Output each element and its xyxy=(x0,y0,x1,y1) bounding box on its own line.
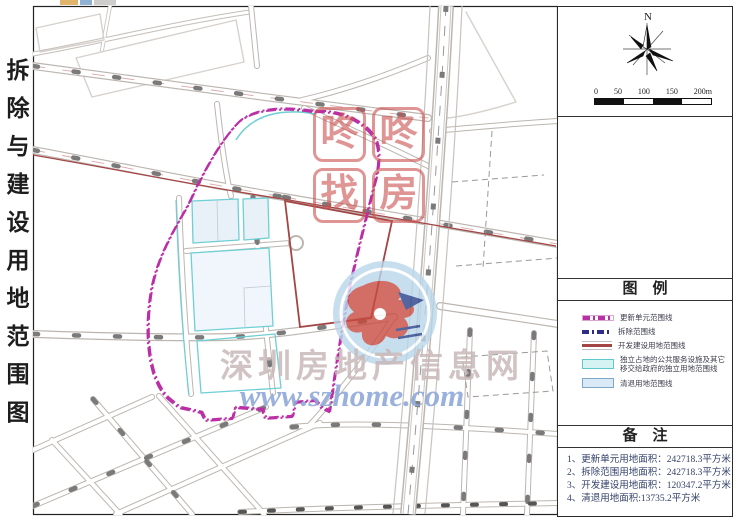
note-item: 4、清退用地面积:13735.2平方米 xyxy=(567,493,729,506)
north-label: N xyxy=(644,11,652,23)
notes-header: 备 注 xyxy=(558,425,732,448)
scale-tick: 150 xyxy=(666,87,678,96)
scale-tick: 100 xyxy=(638,87,650,96)
legend-item-public-facility: 独立占地的公共服务设施及其它 移交给政府的独立用地范围线 xyxy=(582,355,728,373)
stamp-char: 找 xyxy=(313,168,366,223)
edge-sliver xyxy=(60,0,116,5)
legend-label: 清退用地范围线 xyxy=(620,379,673,388)
planning-map-sheet: 拆除与建设用地范围图 xyxy=(0,0,740,522)
scale-bar-segments xyxy=(594,98,712,105)
legend-label: 独立占地的公共服务设施及其它 移交给政府的独立用地范围线 xyxy=(620,355,725,373)
north-arrow: N xyxy=(618,9,676,83)
legend-item-development: 开发建设用地范围线 xyxy=(582,341,728,350)
note-item: 1、更新单元用地面积：242718.3平方米 xyxy=(567,454,729,467)
scale-bar: 0 50 100 150 200m xyxy=(594,87,712,105)
scale-tick: 0 xyxy=(594,87,598,96)
note-item: 3、开发建设用地面积：120347.2平方米 xyxy=(567,480,729,493)
scale-tick: 200m xyxy=(694,87,712,96)
legend-swatch-update-unit xyxy=(582,315,614,321)
legend-list: 更新单元范围线 拆除范围线 开发建设用地范围线 独立占地的公共服务设施及其它 移… xyxy=(582,313,728,393)
watermark-stamp: 咚 咚 找 房 xyxy=(313,107,425,223)
legend-label: 更新单元范围线 xyxy=(620,313,673,322)
scale-tick: 50 xyxy=(614,87,622,96)
legend-swatch-development xyxy=(582,341,612,350)
panel-divider xyxy=(558,116,732,117)
watermark-site-url: www.szhome.com xyxy=(240,378,465,413)
legend-swatch-public-facility xyxy=(582,359,614,369)
legend-swatch-clear-land xyxy=(582,378,614,388)
map-frame xyxy=(34,7,558,515)
legend-label: 开发建设用地范围线 xyxy=(618,341,686,350)
legend-item-clear-land: 清退用地范围线 xyxy=(582,378,728,388)
stamp-char: 咚 xyxy=(313,107,366,162)
scale-labels: 0 50 100 150 200m xyxy=(594,87,712,96)
legend-item-demolition: 拆除范围线 xyxy=(582,327,728,336)
stamp-char: 房 xyxy=(372,168,425,223)
notes-list: 1、更新单元用地面积：242718.3平方米 2、拆除范围用地面积：242718… xyxy=(567,454,729,506)
legend-header: 图 例 xyxy=(558,278,732,301)
legend-label: 拆除范围线 xyxy=(618,327,656,336)
legend-swatch-demolition xyxy=(582,330,612,334)
note-item: 2、拆除范围用地面积：242718.3平方米 xyxy=(567,467,729,480)
legend-item-update-unit: 更新单元范围线 xyxy=(582,313,728,322)
info-panel: N 0 50 100 150 200m xyxy=(557,6,733,517)
stamp-char: 咚 xyxy=(372,107,425,162)
